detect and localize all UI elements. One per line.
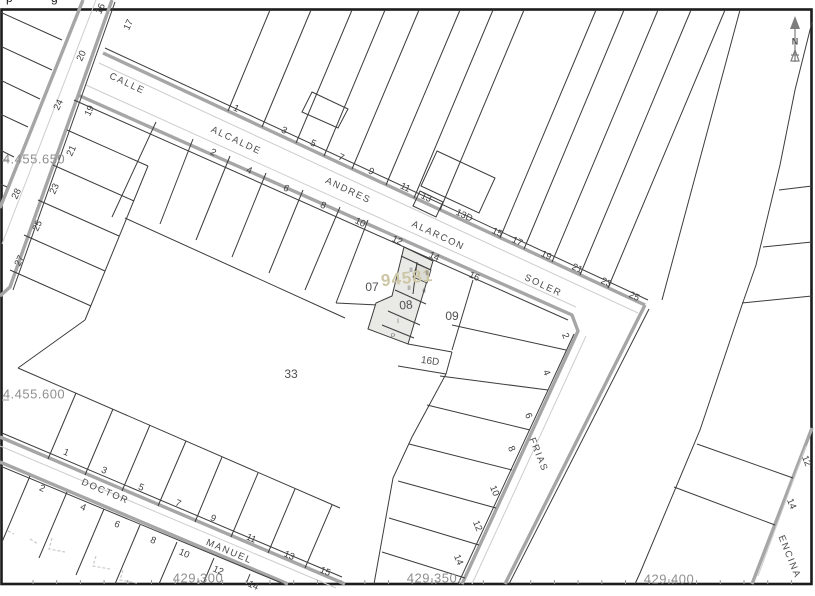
parcel-number: 07: [365, 281, 378, 293]
parcel-lines-north-block: [228, 10, 740, 300]
floor-count-label: I: [397, 319, 399, 326]
floor-count-label: II: [409, 268, 413, 275]
parcel-number: 09: [445, 310, 458, 322]
coordinate-label: 429.400: [644, 573, 695, 586]
cadastral-map-viewport[interactable]: p g: [0, 0, 815, 596]
floor-count-label: P: [391, 334, 395, 341]
coordinate-label: 4.455.600: [3, 388, 65, 401]
parcel-lines-central-block: [10, 122, 566, 584]
floor-count-label: II: [422, 289, 426, 296]
north-arrow-label: N: [792, 38, 799, 47]
coordinate-label: 429.350: [407, 572, 458, 585]
parcel-number: 33: [284, 368, 297, 380]
coordinate-label: 4.455.650: [3, 153, 65, 166]
selected-parcel-08[interactable]: [368, 247, 433, 344]
parcel-number: 08: [399, 298, 414, 311]
floor-count-label: II: [407, 286, 411, 293]
floor-count-label: II: [425, 271, 429, 278]
